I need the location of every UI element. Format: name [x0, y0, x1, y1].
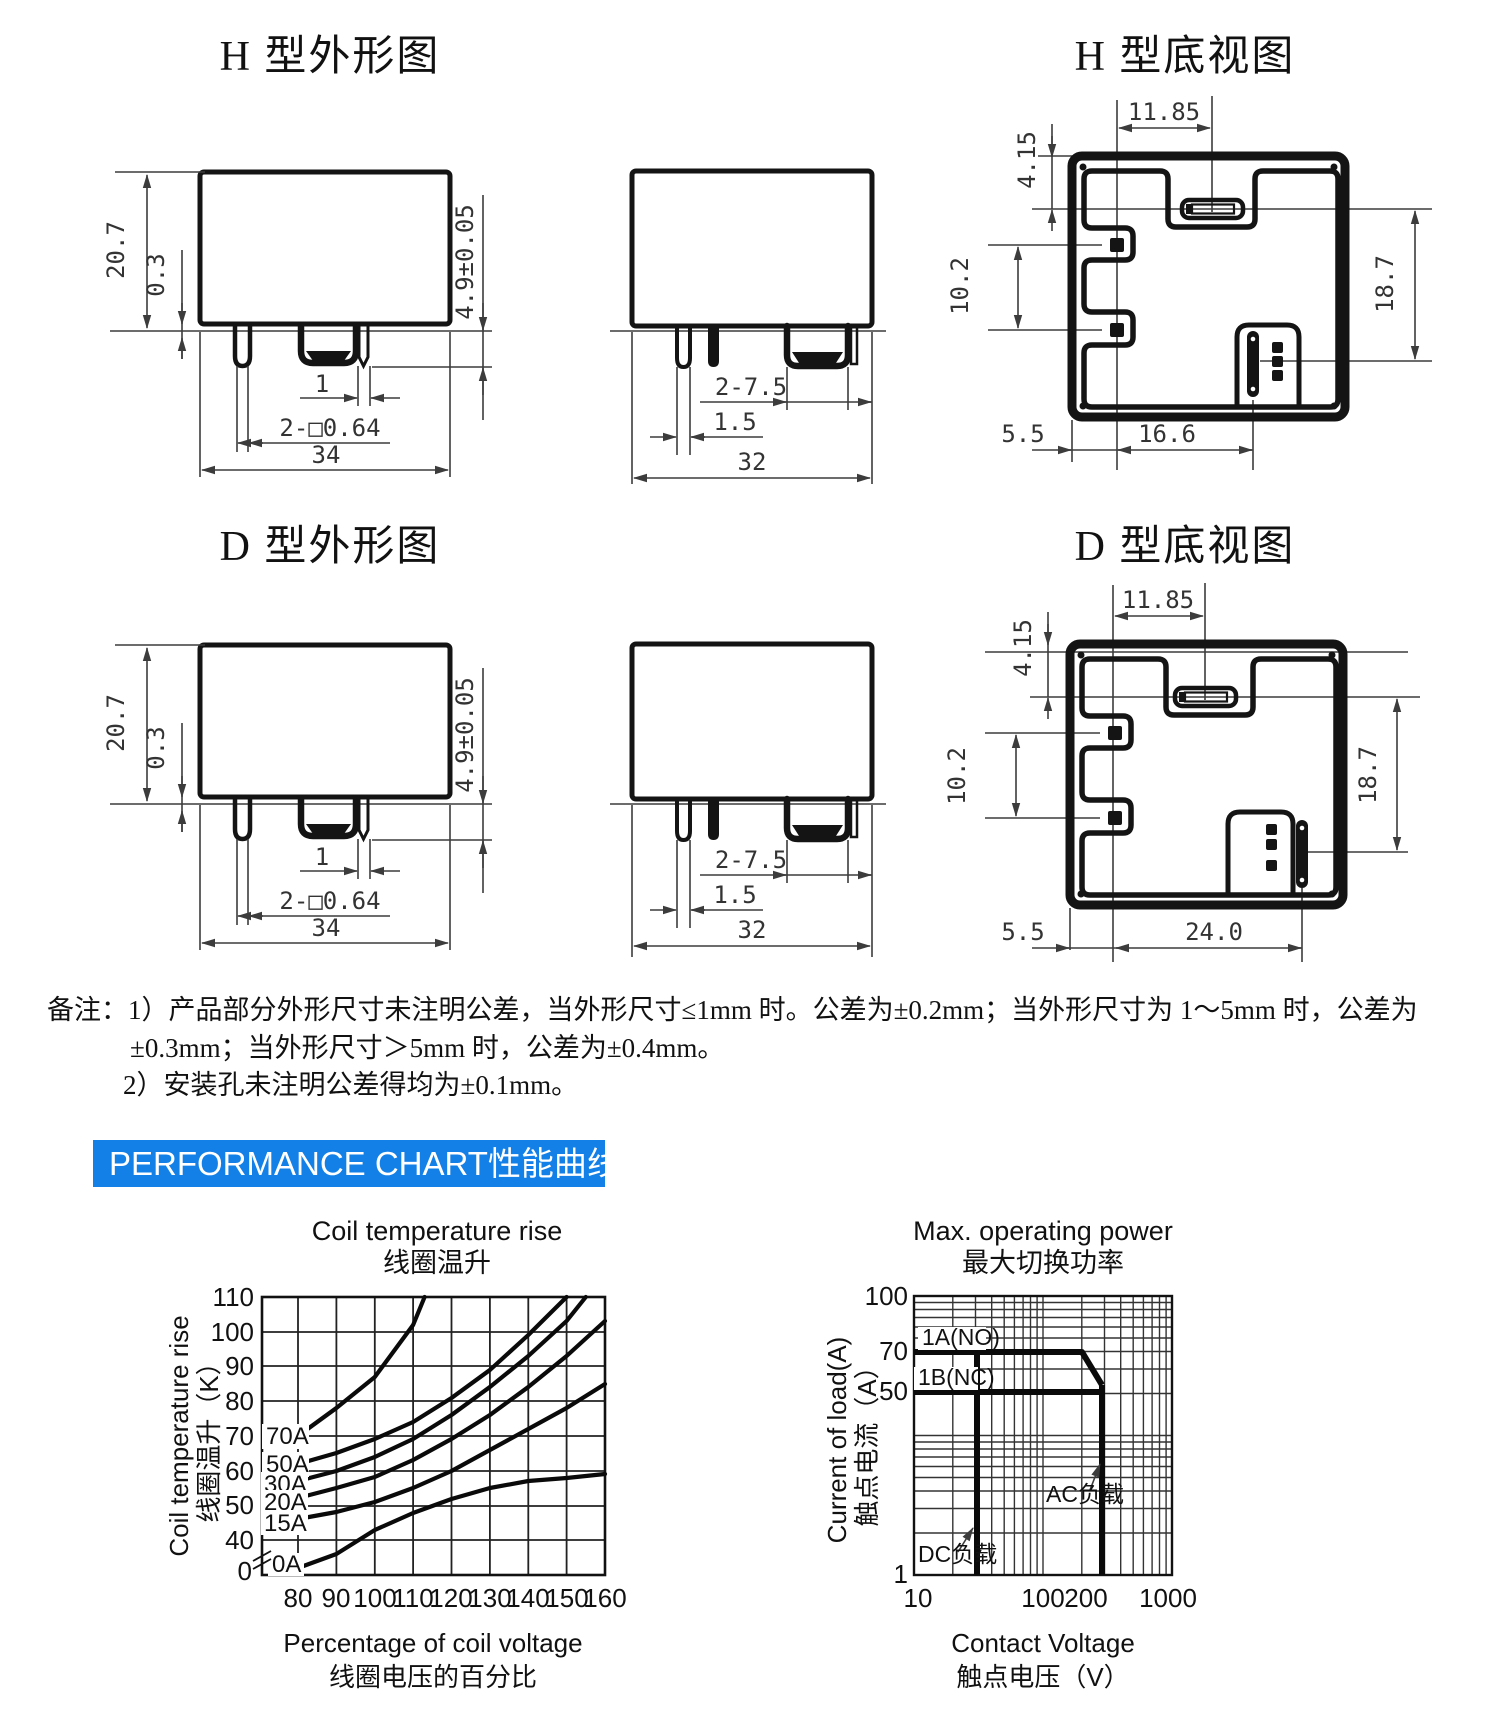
- right-x-tick-200: 200: [1064, 1583, 1107, 1613]
- left-y-tick-100: 100: [211, 1317, 254, 1347]
- d-side-depth-dim: 32: [738, 916, 767, 944]
- h-bottom-slot-pitch-dim: 16.6: [1138, 420, 1196, 448]
- left-y-tick-70: 70: [225, 1421, 254, 1451]
- line-label-1b-nc: 1B(NC): [918, 1364, 995, 1390]
- h-side-tab-width-dim: 2-7.5: [715, 373, 787, 401]
- d-front-pin-length-dim: 4.9±0.05: [451, 677, 479, 793]
- left-y-tick-90: 90: [225, 1351, 254, 1381]
- d-bottom-pad-pitch-dim: 10.2: [943, 747, 971, 805]
- left-y-tick-60: 60: [225, 1456, 254, 1486]
- d-front-pin-gap-dim: 1: [315, 843, 329, 871]
- h-front-base-dim: 0.3: [142, 253, 170, 296]
- left-y-tick-0: 0: [238, 1556, 252, 1586]
- d-bottom-span-dim: 18.7: [1354, 746, 1382, 804]
- left-x-tick-110: 110: [392, 1583, 433, 1613]
- curve-label-15a: 15A: [264, 1510, 307, 1537]
- left-chart-title-en: Coil temperature rise: [312, 1216, 563, 1246]
- curve-label-0a: 0A: [272, 1551, 301, 1578]
- line-label-ac-load: AC负载: [1046, 1481, 1124, 1507]
- datasheet-page: H 型外形图 H 型底视图 D 型外形图 D 型底视图: [0, 0, 1500, 1731]
- h-bottom-pad-pitch-dim: 10.2: [946, 257, 974, 315]
- right-ylabel-zh: 触点电流（A）: [852, 1353, 882, 1526]
- d-bottom-drawing: 11.85 4.15 10.2 18.7 5.5 24.0: [943, 583, 1420, 962]
- curve-label-70a: 70A: [266, 1423, 309, 1450]
- right-chart-title-en: Max. operating power: [913, 1216, 1173, 1246]
- right-xlabel-en: Contact Voltage: [951, 1628, 1135, 1658]
- h-side-pin-width-dim: 1.5: [713, 408, 756, 436]
- left-ylabel-zh: 线圈温升（K）: [194, 1349, 224, 1522]
- left-y-tick-50: 50: [225, 1490, 254, 1520]
- h-bottom-span-dim: 18.7: [1371, 255, 1399, 313]
- left-x-tick-160: 160: [583, 1583, 626, 1613]
- left-xlabel-en: Percentage of coil voltage: [283, 1628, 582, 1658]
- d-front-width-dim: 34: [312, 914, 341, 942]
- h-side-depth-dim: 32: [738, 448, 767, 476]
- coil-temperature-rise-chart: Coil temperature rise 线圈温升: [164, 1216, 627, 1692]
- max-operating-power-chart: Max. operating power 最大切换功率: [822, 1216, 1197, 1692]
- left-x-tick-100: 100: [353, 1583, 396, 1613]
- right-x-tick-100: 100: [1021, 1583, 1064, 1613]
- left-xlabel-zh: 线圈电压的百分比: [329, 1662, 537, 1692]
- left-x-tick-150: 150: [545, 1583, 588, 1613]
- d-bottom-slot-pitch-dim: 24.0: [1185, 918, 1243, 946]
- h-bottom-drawing: 11.85 4.15 10.2 18.7 5.5 16.6: [946, 96, 1432, 470]
- performance-chart-banner: PERFORMANCE CHART性能曲线图: [93, 1140, 605, 1187]
- d-bottom-edge-offset-dim: 5.5: [1001, 918, 1044, 946]
- d-side-tab-width-dim: 2-7.5: [715, 846, 787, 874]
- h-front-height-dim: 20.7: [102, 221, 130, 279]
- d-side-pin-width-dim: 1.5: [713, 881, 756, 909]
- left-y-tick-40: 40: [225, 1525, 254, 1555]
- right-x-tick-1000: 1000: [1139, 1583, 1197, 1613]
- left-y-tick-110: 110: [213, 1282, 254, 1312]
- drawings-and-charts-canvas: 20.7 0.3 4.9±0.05 1 2-□0.64 34: [0, 0, 1500, 1731]
- left-x-tick-140: 140: [506, 1583, 549, 1613]
- right-ylabel-en: Current of load(A): [822, 1337, 852, 1544]
- line-label-dc-load: DC负载: [918, 1541, 997, 1567]
- right-chart-title-zh: 最大切换功率: [962, 1248, 1124, 1278]
- left-y-tick-80: 80: [225, 1386, 254, 1416]
- h-front-drawing: 20.7 0.3 4.9±0.05 1 2-□0.64 34: [102, 172, 492, 477]
- left-chart-title-zh: 线圈温升: [383, 1248, 491, 1278]
- note-line-2: ±0.3mm；当外形尺寸＞5mm 时，公差为±0.4mm。: [130, 1026, 724, 1065]
- note-line-1: 备注：1）产品部分外形尺寸未注明公差，当外形尺寸≤1mm 时。公差为±0.2mm…: [47, 988, 1418, 1027]
- note-line-3: 2）安装孔未注明公差得均为±0.1mm。: [123, 1063, 578, 1102]
- h-front-pin-gap-dim: 1: [315, 370, 329, 398]
- d-front-pin-square-dim: 2-□0.64: [279, 887, 380, 915]
- d-front-height-dim: 20.7: [102, 694, 130, 752]
- d-front-base-dim: 0.3: [142, 726, 170, 769]
- right-y-tick-70: 70: [879, 1336, 908, 1366]
- h-bottom-slot-offset-dim: 4.15: [1013, 131, 1041, 189]
- left-x-tick-130: 130: [468, 1583, 511, 1613]
- h-bottom-edge-offset-dim: 5.5: [1001, 420, 1044, 448]
- h-front-width-dim: 34: [312, 441, 341, 469]
- d-bottom-slot-offset-dim: 4.15: [1009, 619, 1037, 677]
- right-x-tick-10: 10: [904, 1583, 933, 1613]
- h-front-pin-square-dim: 2-□0.64: [279, 414, 380, 442]
- h-front-pin-length-dim: 4.9±0.05: [451, 204, 479, 320]
- left-x-tick-120: 120: [429, 1583, 472, 1613]
- right-xlabel-zh: 触点电压（V）: [956, 1662, 1129, 1692]
- left-x-tick-90: 90: [322, 1583, 351, 1613]
- d-bottom-pitch-dim: 11.85: [1122, 586, 1194, 614]
- right-y-tick-100: 100: [865, 1281, 908, 1311]
- d-side-drawing: 2-7.5 1.5 32: [610, 644, 886, 957]
- right-y-tick-50: 50: [879, 1376, 908, 1406]
- left-x-tick-80: 80: [284, 1583, 313, 1613]
- line-label-1a-no: 1A(NO): [922, 1324, 1000, 1350]
- h-bottom-pitch-dim: 11.85: [1128, 98, 1200, 126]
- d-front-drawing: 20.7 0.3 4.9±0.05 1 2-□0.64 34: [102, 645, 492, 950]
- left-ylabel-en: Coil temperature rise: [164, 1315, 194, 1556]
- h-side-drawing: 2-7.5 1.5 32: [610, 171, 886, 484]
